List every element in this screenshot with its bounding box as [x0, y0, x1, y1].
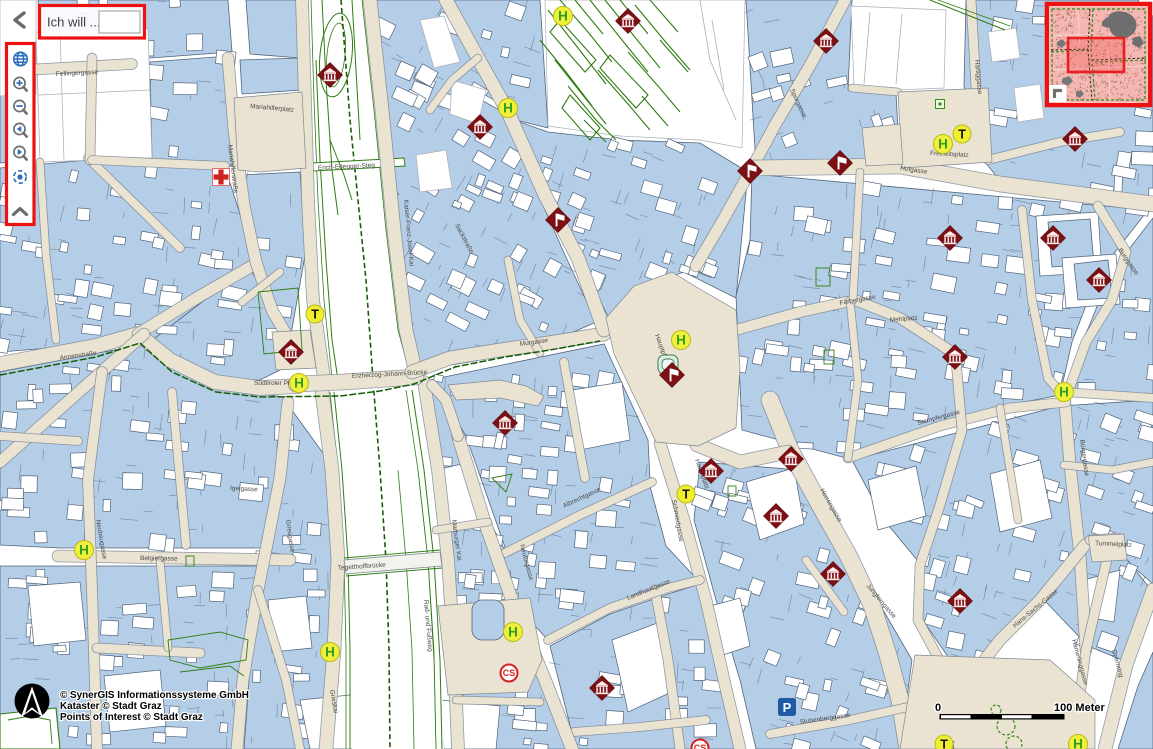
- svg-text:T: T: [940, 737, 948, 749]
- svg-text:H: H: [508, 625, 518, 640]
- svg-text:H: H: [1073, 737, 1083, 749]
- svg-text:P: P: [783, 700, 792, 715]
- svg-text:CS: CS: [503, 668, 516, 678]
- svg-text:H: H: [938, 137, 948, 152]
- svg-text:T: T: [311, 307, 319, 321]
- svg-text:H: H: [676, 333, 686, 348]
- svg-text:CS: CS: [694, 743, 707, 749]
- svg-text:T: T: [682, 487, 690, 501]
- svg-text:100 Meter: 100 Meter: [1054, 702, 1105, 714]
- svg-text:Igelgasse: Igelgasse: [230, 485, 259, 493]
- svg-text:Belgiergasse: Belgiergasse: [140, 555, 178, 563]
- svg-text:H: H: [503, 101, 513, 116]
- svg-text:H: H: [1059, 385, 1069, 400]
- svg-text:Points of Interest © Stadt Gra: Points of Interest © Stadt Graz: [60, 712, 203, 723]
- svg-text:H: H: [325, 645, 335, 660]
- svg-text:T: T: [958, 127, 966, 141]
- svg-text:Kataster © Stadt Graz: Kataster © Stadt Graz: [60, 701, 162, 712]
- svg-text:© SynerGIS Informationssysteme: © SynerGIS Informationssysteme GmbH: [60, 690, 249, 701]
- svg-text:H: H: [558, 9, 568, 24]
- svg-text:H: H: [294, 376, 304, 391]
- svg-text:0: 0: [935, 702, 941, 714]
- svg-text:H: H: [79, 543, 89, 558]
- svg-text:Ich will ...: Ich will ...: [47, 15, 100, 30]
